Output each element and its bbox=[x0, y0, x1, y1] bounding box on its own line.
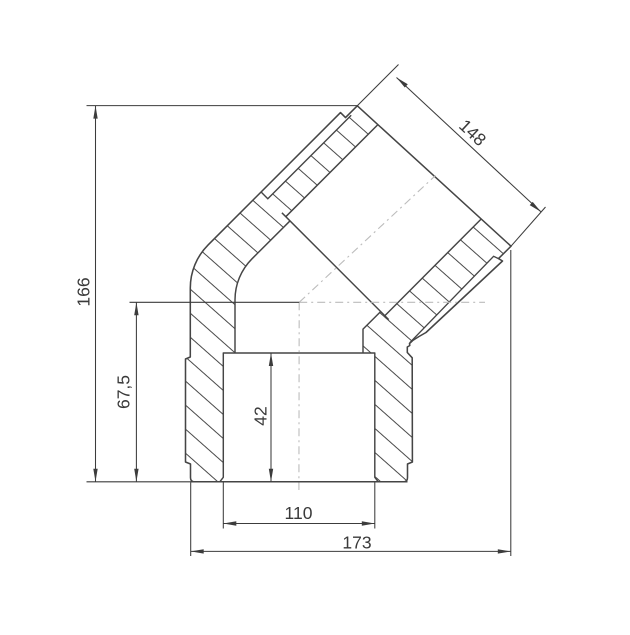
svg-text:110: 110 bbox=[285, 503, 313, 523]
svg-text:173: 173 bbox=[342, 533, 371, 553]
svg-text:166: 166 bbox=[74, 277, 94, 306]
svg-text:67,5: 67,5 bbox=[113, 375, 133, 409]
svg-text:42: 42 bbox=[251, 406, 271, 425]
